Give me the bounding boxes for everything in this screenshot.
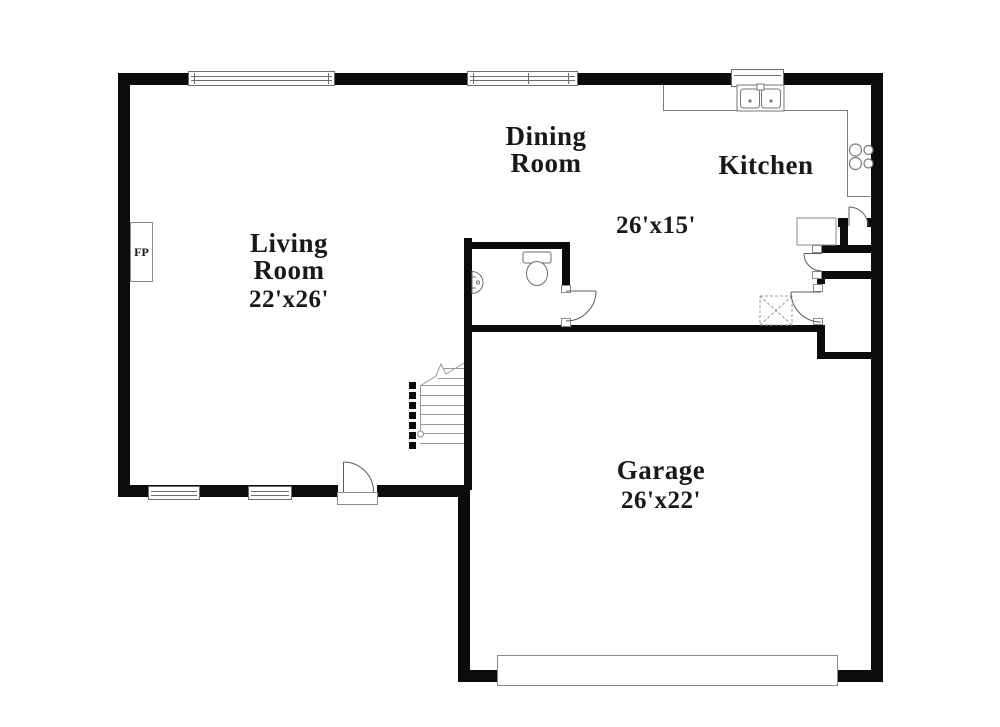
fixture-toilet — [523, 252, 551, 286]
door-arc-laundry — [791, 292, 821, 322]
dining-room-name: Dining Room — [486, 123, 606, 177]
fixtures-layer — [0, 0, 1000, 727]
garage-dims: 26'x22' — [576, 487, 746, 514]
fixture-refrigerator — [797, 218, 836, 245]
stair-treads — [420, 369, 464, 444]
floor-plan: FP — [0, 0, 1000, 727]
door-arc-closet — [804, 254, 822, 272]
dining-room-dims: 26'x15' — [581, 212, 731, 239]
fixture-hvac-unit — [760, 296, 792, 325]
living-room-name: Living Room — [229, 230, 349, 284]
stair-balusters — [409, 382, 416, 449]
fixture-stove — [850, 144, 874, 170]
door-arc-front-entry — [344, 462, 374, 492]
garage-name: Garage — [576, 457, 746, 484]
door-arc-bathroom — [566, 291, 596, 321]
fixture-bath-sink — [472, 272, 483, 294]
living-room-dims: 22'x26' — [214, 286, 364, 313]
stair-newel — [418, 431, 424, 437]
door-arc-kitchen-hall — [849, 207, 868, 226]
fixture-kitchen-sink — [737, 84, 784, 111]
fixture-staircase — [409, 363, 464, 449]
stair-break-line — [420, 363, 464, 386]
kitchen-name: Kitchen — [686, 152, 846, 179]
